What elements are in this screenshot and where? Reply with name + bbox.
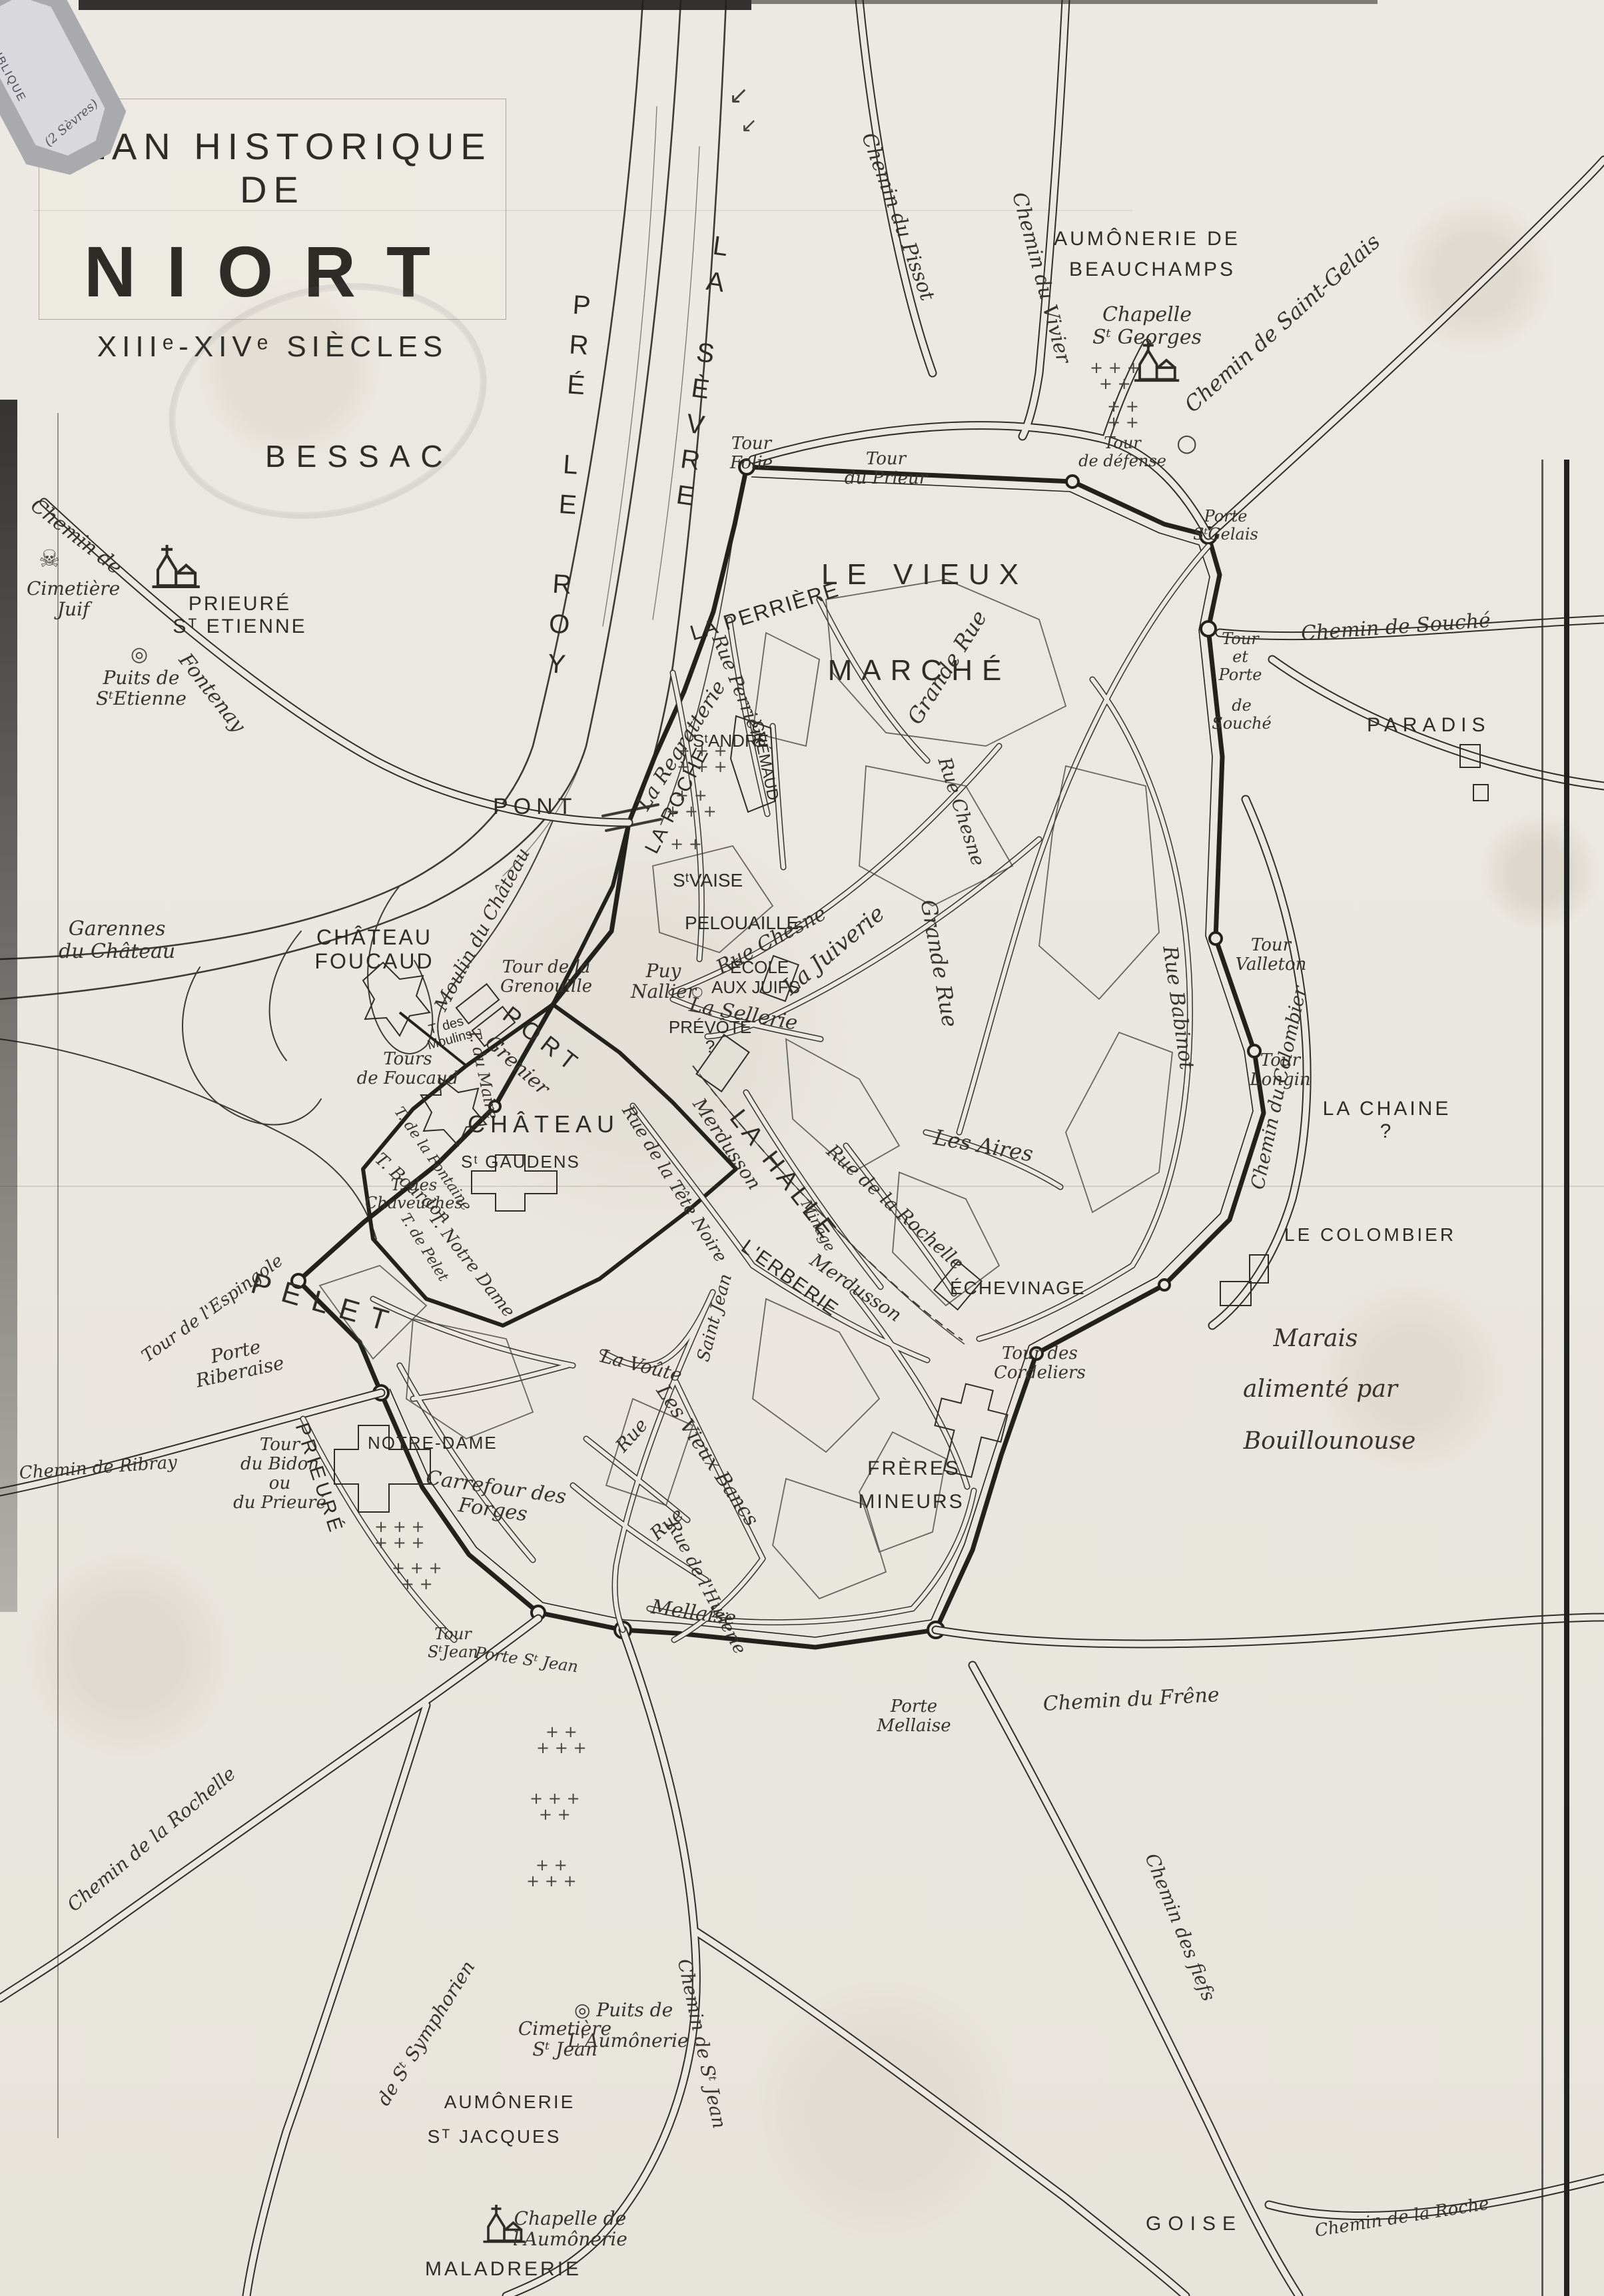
map-label: de Souché — [1212, 697, 1271, 733]
fold-crease — [33, 210, 1132, 211]
label-le-vieux-marche: LE VIEUX — [821, 558, 1028, 591]
label-pont: PONT — [493, 794, 577, 819]
paradis-building — [1460, 745, 1480, 767]
label-goise: GOISE — [1146, 2213, 1242, 2235]
label-ecole-aux-juifs: ÉCOLE — [730, 958, 789, 977]
map-label: L'Aumônerie — [568, 2030, 688, 2051]
label-tour-valleton: Tour Valleton — [1236, 936, 1307, 974]
label-tour-des-chaveuches: T. des Chaveuches — [365, 1176, 463, 1212]
label-prieure-st-etienne: PRIEURÉ Sᵀ ETIENNE — [173, 593, 306, 637]
colombier-building — [1250, 1255, 1268, 1283]
stamp-center-text: (2 Sèvres) — [41, 97, 101, 150]
scan-edge-left — [0, 400, 17, 1612]
fold-crease — [0, 1186, 1604, 1187]
label-le-colombier: LE COLOMBIER — [1284, 1224, 1456, 1245]
cemetery-crosses: + + + + + + — [677, 743, 727, 775]
label-tour-du-prieur: Tour du Prieur — [845, 450, 927, 488]
label-marais: Marais — [1274, 1326, 1358, 1352]
label-tours-de-foucaud: Tours de Foucaud — [357, 1050, 459, 1088]
map-border-left — [57, 413, 59, 2138]
label-puy-nallier: Puy Nallier — [631, 960, 696, 1002]
map-label: BEAUCHAMPS — [1069, 258, 1236, 281]
label-st-gaudens: Sᵗ GAUDENS — [461, 1152, 580, 1172]
cemetery-crosses: + + + + + + — [374, 1519, 425, 1551]
label-tour-st-jean: Tour SᵗJean — [428, 1625, 478, 1661]
label-prevote: PRÉVÔTÉ ? — [669, 1018, 751, 1056]
label-tour-des-cordeliers: Tour des Cordeliers — [994, 1344, 1086, 1383]
label-aumonerie-de-beauchamps: AUMÔNERIE DE — [1054, 228, 1240, 250]
river-flow-arrow: ↙ — [741, 116, 757, 136]
label-notre-dame: NOTRE-DAME — [368, 1433, 498, 1453]
label-puits-de-l-aumonerie: ◎ Puits de — [574, 2000, 673, 2020]
st-etienne-church-icon — [153, 545, 200, 587]
label-tour-de-defense: Tour de défense — [1078, 434, 1166, 470]
cemetery-crosses: + + + + + — [530, 1790, 580, 1822]
label-freres-mineurs: FRÈRES — [867, 1457, 961, 1480]
cemetery-crosses: + + + + + — [666, 787, 717, 819]
label-paradis: PARADIS — [1367, 714, 1490, 737]
map-label: Sᵀ JACQUES — [428, 2126, 562, 2147]
map-border-right — [1564, 460, 1569, 2296]
cemetery-crosses: + + + + — [1107, 398, 1139, 430]
label-puits-st-etienne: Puits de SᵗEtienne — [96, 667, 187, 709]
label-echevinage: ÉCHEVINAGE — [950, 1278, 1086, 1298]
label-garennes-du-chateau: Garennes du Château — [59, 918, 175, 962]
cemetery-crosses: + + — [670, 836, 702, 852]
historical-map-niort: BESSACChemin deFontenay☠Cimetière JuifPR… — [0, 0, 1604, 2296]
cemetery-crosses: + + + + + — [536, 1724, 587, 1756]
label-la-chaine: LA CHAINE ? — [1323, 1098, 1451, 1142]
label-tour-folie: Tour Folie — [730, 434, 773, 473]
cemetery-crosses: + + + + + — [526, 1857, 577, 1889]
stamp-edge-text: PUBLIQUE — [0, 38, 29, 104]
label-cimetiere-juif: Cimetière Juif — [27, 578, 120, 620]
label-tour-et-porte-de-souche: Tour et Porte — [1219, 630, 1262, 684]
scan-edge-top — [79, 0, 751, 10]
well-icon-st-etienne: ◎ — [131, 645, 148, 665]
label-chateau: CHÂTEAU — [468, 1111, 619, 1138]
map-label: MARCHÉ — [828, 654, 1011, 687]
label-chateau-foucaud: CHÂTEAU FOUCAUD — [314, 926, 434, 974]
river-flow-arrow: ↙ — [729, 84, 749, 108]
map-label: MINEURS — [858, 1491, 964, 1513]
tower-circle-icon: ○ — [1176, 432, 1197, 456]
map-label: alimenté par — [1243, 1376, 1398, 1403]
label-porte-st-gelais: Porte SᵗGelais — [1193, 508, 1258, 544]
cemetery-crosses: + + + + + — [1090, 360, 1140, 392]
label-maladrerie: MALADRERIE — [425, 2258, 582, 2281]
scan-edge-top — [751, 0, 1378, 4]
label-st-vaise: SᵗVAISE — [673, 870, 743, 891]
map-label: Bouillounouse — [1244, 1428, 1416, 1455]
map-border-right — [1541, 460, 1543, 2296]
label-tour-de-la-grenouille: Tour de la Grenouille — [500, 958, 592, 996]
label-chapelle-st-georges: Chapelle Sᵗ Georges — [1092, 304, 1202, 348]
label-chapelle-de-l-aumonerie: Chapelle de l'Aumônerie — [513, 2208, 627, 2250]
cemetery-crosses: + + + + + — [392, 1560, 442, 1592]
label-porte-mellaise: Porte Mellaise — [877, 1697, 951, 1736]
label-aumonerie-st-jacques: AUMÔNERIE — [444, 2092, 576, 2112]
